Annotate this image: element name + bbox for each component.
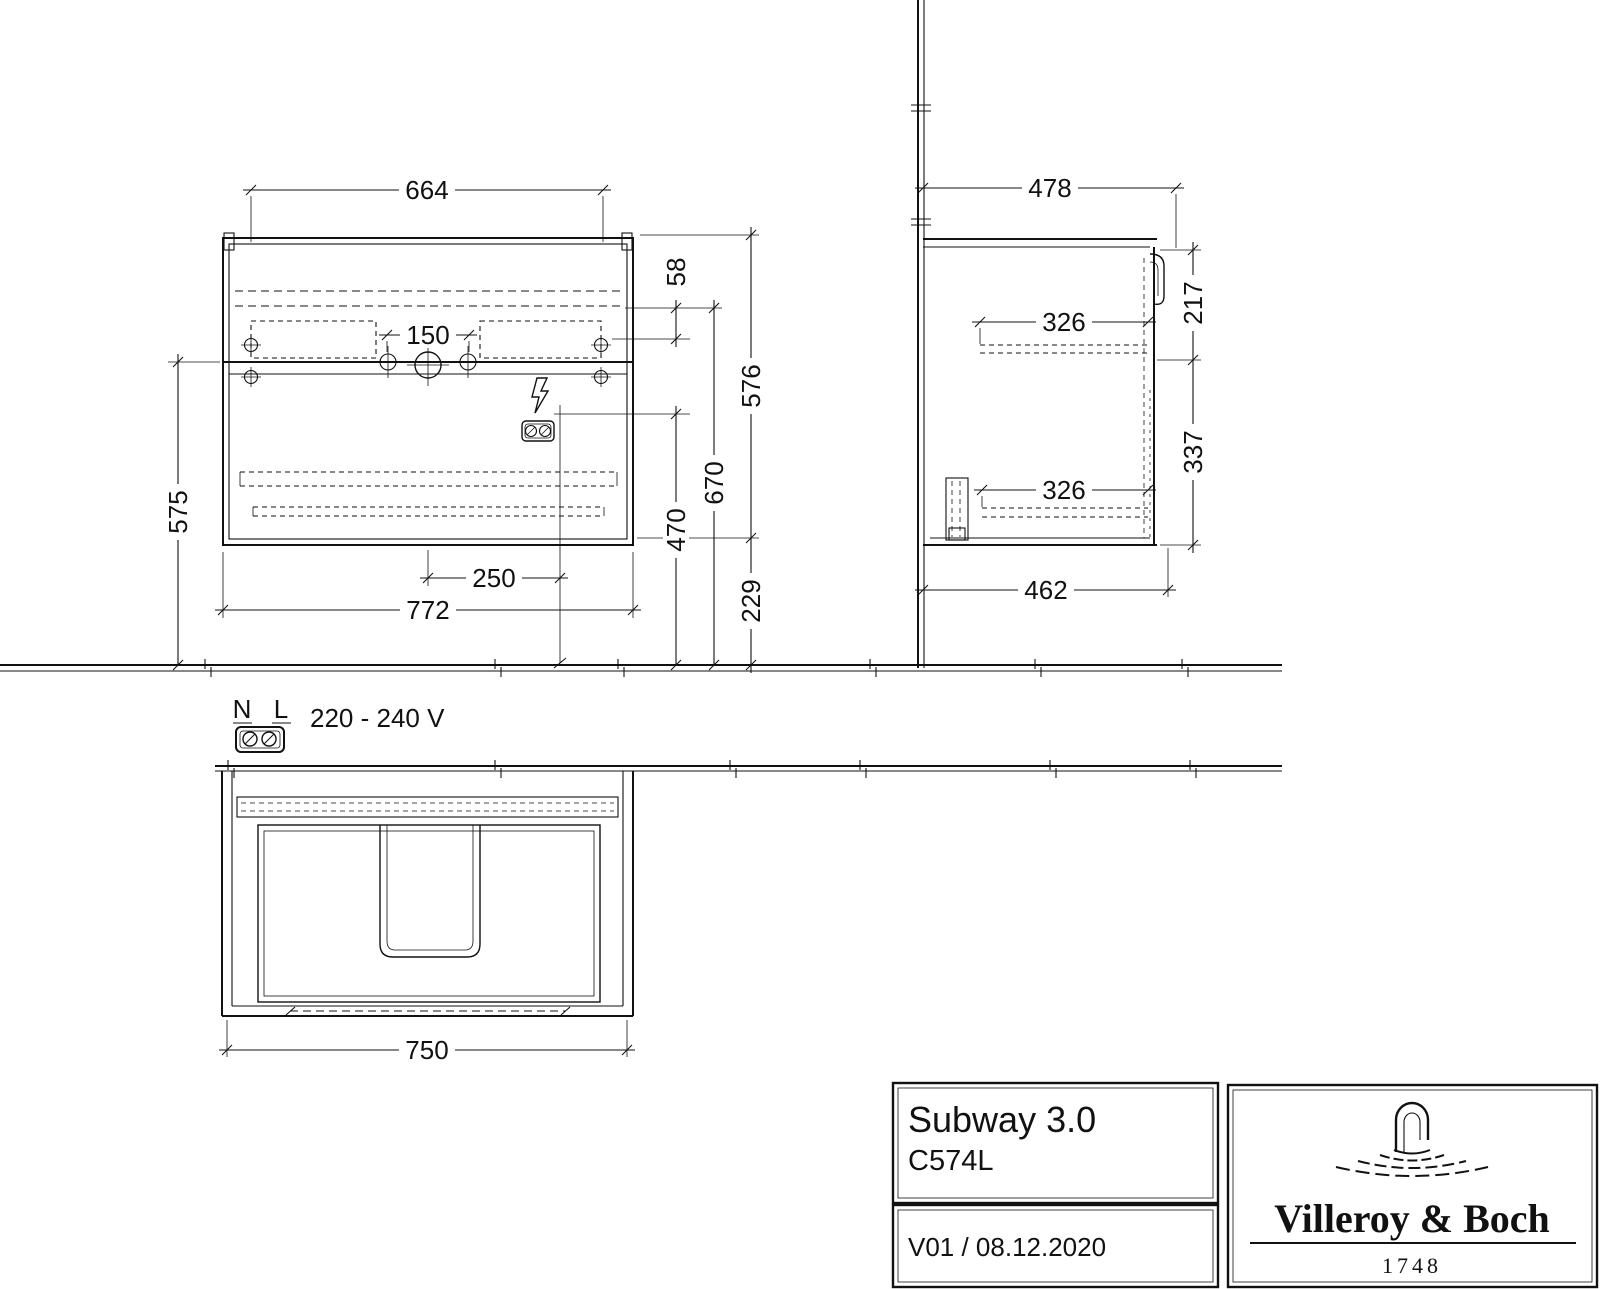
faucet-logo-icon (1336, 1103, 1488, 1176)
hanging-rail-plan (237, 797, 618, 817)
cabinet-outline (223, 238, 633, 545)
live-label: L (274, 694, 288, 724)
voltage-label: 220 - 240 V (310, 703, 445, 733)
plan-view: 750 (219, 771, 635, 1065)
dim-carcass-depth: 462 (1024, 575, 1067, 605)
title-block: Subway 3.0 C574L V01 / 08.12.2020 Viller… (893, 1083, 1597, 1287)
lightning-icon (532, 378, 548, 413)
terminal-block-icon (236, 727, 284, 752)
series-name: Subway 3.0 (908, 1099, 1096, 1140)
siphon-cutout (946, 478, 968, 540)
model-number: C574L (908, 1145, 993, 1177)
dim-drawer-top: 326 (1042, 307, 1085, 337)
brand-year: 1748 (1382, 1253, 1442, 1278)
terminal-box-icon (522, 421, 554, 441)
bottom-panel (258, 825, 600, 1002)
technical-drawing-page: 664 150 58 470 670 (0, 0, 1600, 1289)
dim-mount-height: 575 (163, 490, 193, 533)
dim-height: 576 (736, 364, 766, 407)
basin-cutout (380, 825, 480, 957)
dim-outlet-offset: 250 (472, 563, 515, 593)
revision-date: V01 / 08.12.2020 (908, 1232, 1106, 1262)
handle-profile (1150, 254, 1164, 304)
dim-outlet-height: 470 (661, 508, 691, 551)
wall-section-lines (0, 659, 1282, 778)
front-view-dimensions: 664 150 58 470 670 (163, 175, 766, 673)
electrical-note: N L 220 - 240 V (233, 694, 445, 752)
dim-bottom-front: 337 (1178, 430, 1208, 473)
dim-rail-height: 670 (699, 461, 729, 504)
dim-inner-width: 664 (405, 175, 448, 205)
front-view (223, 233, 690, 668)
drilling-holes (374, 344, 482, 386)
dim-plan-width: 750 (405, 1035, 448, 1065)
brand-name: Villeroy & Boch (1274, 1196, 1550, 1241)
drawer-runner-right (480, 321, 601, 358)
drawer-runner-left (251, 321, 376, 358)
dim-total-width: 772 (406, 595, 449, 625)
dim-top-front: 217 (1178, 281, 1208, 324)
dim-drawer-bottom: 326 (1042, 475, 1085, 505)
dim-depth: 478 (1028, 173, 1071, 203)
neutral-label: N (233, 694, 252, 724)
dim-tap-distance: 150 (406, 320, 449, 350)
dim-rail-offset: 58 (661, 258, 691, 287)
dim-bottom-clearance: 229 (736, 579, 766, 622)
drawing-canvas: 664 150 58 470 670 (0, 0, 1600, 1289)
